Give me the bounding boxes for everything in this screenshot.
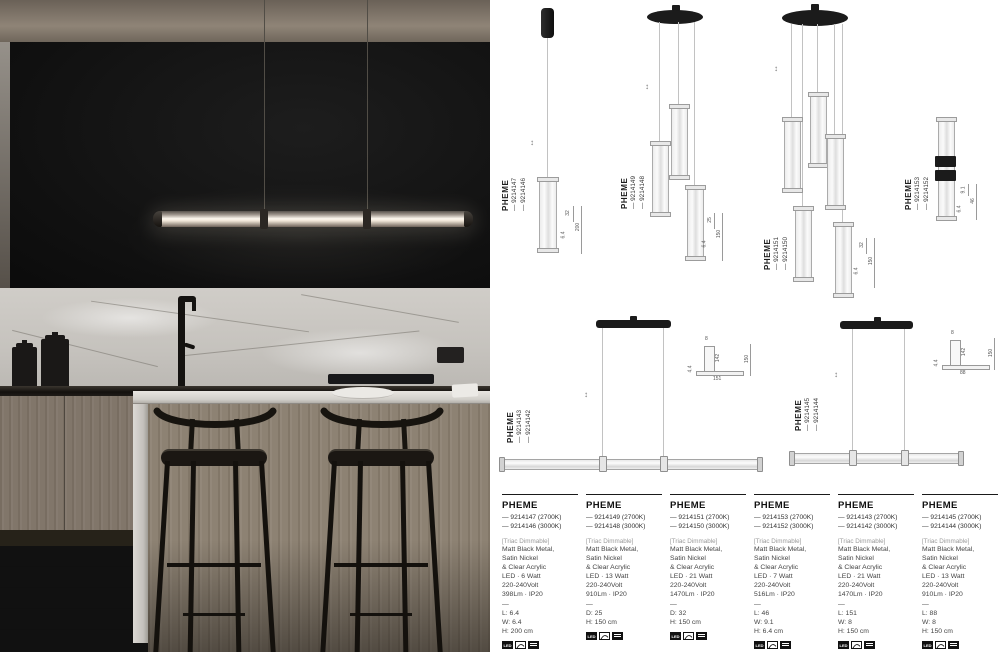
lamp-tube xyxy=(784,118,801,192)
product-dimmable-note: [Triac Dimmable] xyxy=(754,538,830,545)
lamp-tube xyxy=(810,93,827,167)
dimmable-badge xyxy=(851,641,862,649)
catalog-page: PHEME — 9214147 — 9214146 32 200 6.4 PHE… xyxy=(0,0,1003,652)
mount-block xyxy=(935,170,956,181)
lamp-connector xyxy=(363,209,371,229)
drawing-label: PHEME — 9214149 — 9214148 xyxy=(620,176,647,209)
product-electrical: LED · 21 Watt220-240Volt1470Lm · IP20 xyxy=(838,572,914,599)
drawing-brand: PHEME xyxy=(794,398,803,431)
bar-end-cap xyxy=(958,451,964,466)
lamp-tube xyxy=(671,105,688,179)
drawing-code: — 9214151 xyxy=(772,237,781,270)
black-canister xyxy=(12,347,37,389)
suspension-wire xyxy=(678,22,679,105)
suspension-wire xyxy=(659,22,660,142)
pendant-lamp-photo xyxy=(154,211,472,227)
certification-badges: LED xyxy=(922,641,998,649)
island-marble-side xyxy=(133,403,148,643)
bar-end-cap xyxy=(789,451,795,466)
product-material: Matt Black Metal,Satin Nickel& Clear Acr… xyxy=(586,545,662,572)
wood-floor xyxy=(0,546,133,652)
cooktop xyxy=(328,374,434,384)
drawing-code: — 9214148 xyxy=(638,176,647,209)
product-spec-column: PHEME — 9214147 (2700K)— 9214146 (3000K)… xyxy=(502,494,578,649)
product-size: D: 25H: 150 cm xyxy=(586,609,662,627)
lamp-tube xyxy=(835,223,852,297)
bar-connector xyxy=(901,450,909,466)
kitchen-faucet xyxy=(172,296,202,390)
drawing-code: — 9214153 xyxy=(913,177,922,210)
catalog-panel: PHEME — 9214147 — 9214146 32 200 6.4 PHE… xyxy=(490,0,1003,652)
lamp-bar xyxy=(502,459,761,470)
product-variants: — 9214151 (2700K)— 9214150 (3000K) xyxy=(670,513,746,531)
separator-dash: — xyxy=(754,600,830,609)
drawing-brand: PHEME xyxy=(506,410,515,443)
product-spec-column: PHEME — 9214151 (2700K)— 9214150 (3000K)… xyxy=(670,494,746,649)
product-name: PHEME xyxy=(838,500,914,511)
energy-label-badge xyxy=(612,632,623,640)
dimmable-badge xyxy=(599,632,610,640)
drawing-label: PHEME — 9214147 — 9214146 xyxy=(501,178,528,211)
lamp-tube xyxy=(652,142,669,216)
suspension-wire xyxy=(852,329,853,453)
lamp-bar xyxy=(792,453,962,464)
product-size: D: 32H: 150 cm xyxy=(670,609,746,627)
height-adjust-arrow xyxy=(530,138,534,147)
led-badge: LED xyxy=(754,641,765,649)
canopy xyxy=(596,320,671,328)
product-size: L: 6.4W: 6.4H: 200 cm xyxy=(502,609,578,636)
drawing-code: — 9214145 xyxy=(803,398,812,431)
towel xyxy=(452,383,479,397)
drawing-code: — 9214147 xyxy=(510,178,519,211)
energy-label-badge xyxy=(780,641,791,649)
stool-seat xyxy=(161,449,267,466)
suspension-wire xyxy=(602,328,603,459)
product-spec-column: PHEME — 9214145 (2700K)— 9214144 (3000K)… xyxy=(922,494,998,649)
plate xyxy=(332,387,394,399)
energy-label-badge xyxy=(864,641,875,649)
suspension-wire xyxy=(547,38,548,178)
separator-dash: — xyxy=(502,600,578,609)
product-size: L: 46W: 9.1H: 6.4 cm xyxy=(754,609,830,636)
drawing-brand: PHEME xyxy=(501,178,510,211)
drawing-label: PHEME — 9214151 — 9214150 xyxy=(763,237,790,270)
drawing-code: — 9214143 xyxy=(515,410,524,443)
height-adjust-arrow xyxy=(774,64,778,73)
dimmer-curve-icon xyxy=(684,633,693,640)
energy-label-badge xyxy=(948,641,959,649)
lamp-tube xyxy=(938,118,955,220)
drawing-brand: PHEME xyxy=(904,177,913,210)
product-variants: — 9214145 (2700K)— 9214144 (3000K) xyxy=(922,513,998,531)
lamp-tube xyxy=(827,135,844,209)
certification-badges: LED xyxy=(670,632,746,640)
mount-block xyxy=(935,156,956,167)
height-adjust-arrow xyxy=(584,390,588,399)
dimmer-curve-icon xyxy=(852,642,861,649)
dimmer-curve-icon xyxy=(516,642,525,649)
suspension-wire xyxy=(904,329,905,453)
product-name: PHEME xyxy=(670,500,746,511)
product-size: L: 88W: 8H: 150 cm xyxy=(922,609,998,636)
wall-switch xyxy=(437,347,464,363)
product-spec-column: PHEME — 9214143 (2700K)— 9214142 (3000K)… xyxy=(838,494,914,649)
product-material: Matt Black Metal,Satin Nickel& Clear Acr… xyxy=(670,545,746,572)
separator-dash: — xyxy=(586,600,662,609)
ceiling-band xyxy=(0,0,490,42)
product-dimmable-note: [Triac Dimmable] xyxy=(502,538,578,545)
bar-connector xyxy=(660,456,668,472)
canopy xyxy=(541,8,554,38)
energy-label-badge xyxy=(696,632,707,640)
product-spec-column: PHEME — 9214149 (2700K)— 9214148 (3000K)… xyxy=(586,494,662,649)
led-badge: LED xyxy=(502,641,513,649)
product-material: Matt Black Metal,Satin Nickel& Clear Acr… xyxy=(754,545,830,572)
bar-connector xyxy=(849,450,857,466)
spec-columns: PHEME — 9214147 (2700K)— 9214146 (3000K)… xyxy=(502,494,998,649)
pendant-wire xyxy=(264,0,265,213)
product-dimmable-note: [Triac Dimmable] xyxy=(838,538,914,545)
suspension-wire xyxy=(802,24,803,207)
certification-badges: LED xyxy=(502,641,578,649)
bar-connector xyxy=(599,456,607,472)
product-name: PHEME xyxy=(922,500,998,511)
led-badge: LED xyxy=(586,632,597,640)
suspension-wire xyxy=(791,24,792,118)
stool-seat xyxy=(328,449,434,466)
product-electrical: LED · 13 Watt220-240Volt910Lm · IP20 xyxy=(586,572,662,599)
drawing-code: — 9214149 xyxy=(629,176,638,209)
dimmable-badge xyxy=(767,641,778,649)
product-name: PHEME xyxy=(502,500,578,511)
product-electrical: LED · 13 Watt220-240Volt910Lm · IP20 xyxy=(922,572,998,599)
drawing-brand: PHEME xyxy=(620,176,629,209)
product-variants: — 9214153 (2700K)— 9214152 (3000K) xyxy=(754,513,830,531)
marble-backsplash xyxy=(0,288,490,386)
certification-badges: LED xyxy=(838,641,914,649)
base-cabinets xyxy=(0,396,133,530)
lamp-tube xyxy=(687,186,704,260)
drawing-label: PHEME — 9214143 — 9214142 xyxy=(506,410,533,443)
stool-backrest xyxy=(320,405,444,431)
bar-end-cap xyxy=(757,457,763,472)
product-dimmable-note: [Triac Dimmable] xyxy=(670,538,746,545)
pendant-wire xyxy=(367,0,368,213)
dark-wall xyxy=(0,42,490,288)
product-material: Matt Black Metal,Satin Nickel& Clear Acr… xyxy=(838,545,914,572)
drawing-brand: PHEME xyxy=(763,237,772,270)
product-material: Matt Black Metal,Satin Nickel& Clear Acr… xyxy=(922,545,998,572)
product-electrical: LED · 21 Watt220-240Volt1470Lm · IP20 xyxy=(670,572,746,599)
stool-backrest xyxy=(153,405,277,431)
drawing-code: — 9214144 xyxy=(812,398,821,431)
drawing-label: PHEME — 9214153 — 9214152 xyxy=(904,177,931,210)
separator-dash: — xyxy=(670,600,746,609)
drawing-code: — 9214150 xyxy=(781,237,790,270)
drawing-code: — 9214142 xyxy=(524,410,533,443)
product-variants: — 9214143 (2700K)— 9214142 (3000K) xyxy=(838,513,914,531)
lamp-end-cap xyxy=(153,211,162,227)
height-adjust-arrow xyxy=(834,370,838,379)
certification-badges: LED xyxy=(754,641,830,649)
drawing-code: — 9214152 xyxy=(922,177,931,210)
energy-label-badge xyxy=(528,641,539,649)
dimmable-badge xyxy=(515,641,526,649)
bar-end-cap xyxy=(499,457,505,472)
lamp-connector xyxy=(260,209,268,229)
cabinet-toekick xyxy=(0,530,133,546)
island-marble-top xyxy=(133,391,490,404)
product-electrical: LED · 6 Watt220-240Volt398Lm · IP20 xyxy=(502,572,578,599)
separator-dash: — xyxy=(838,600,914,609)
certification-badges: LED xyxy=(586,632,662,640)
dimmer-curve-icon xyxy=(600,633,609,640)
wall-edge xyxy=(0,42,10,288)
dimmable-badge xyxy=(683,632,694,640)
led-badge: LED xyxy=(922,641,933,649)
kitchen-photo xyxy=(0,0,490,652)
lamp-tube xyxy=(539,178,557,252)
led-badge: LED xyxy=(838,641,849,649)
separator-dash: — xyxy=(922,600,998,609)
product-size: L: 151W: 8H: 150 cm xyxy=(838,609,914,636)
product-spec-column: PHEME — 9214153 (2700K)— 9214152 (3000K)… xyxy=(754,494,830,649)
product-material: Matt Black Metal,Satin Nickel& Clear Acr… xyxy=(502,545,578,572)
drawing-label: PHEME — 9214145 — 9214144 xyxy=(794,398,821,431)
product-dimmable-note: [Triac Dimmable] xyxy=(586,538,662,545)
product-electrical: LED · 7 Watt220-240Volt516Lm · IP20 xyxy=(754,572,830,599)
suspension-wire xyxy=(694,22,695,186)
suspension-wire xyxy=(817,24,818,93)
suspension-wire xyxy=(834,24,835,135)
height-adjust-arrow xyxy=(645,82,649,91)
product-dimmable-note: [Triac Dimmable] xyxy=(922,538,998,545)
dimmable-badge xyxy=(935,641,946,649)
suspension-wire xyxy=(663,328,664,459)
dimmer-curve-icon xyxy=(936,642,945,649)
bar-stool xyxy=(320,405,444,652)
product-name: PHEME xyxy=(586,500,662,511)
lamp-tube xyxy=(795,207,812,281)
dimmer-curve-icon xyxy=(768,642,777,649)
canopy xyxy=(840,321,913,329)
led-badge: LED xyxy=(670,632,681,640)
product-name: PHEME xyxy=(754,500,830,511)
product-variants: — 9214149 (2700K)— 9214148 (3000K) xyxy=(586,513,662,531)
black-canister xyxy=(41,339,69,389)
bar-stool xyxy=(153,405,277,652)
drawing-code: — 9214146 xyxy=(519,178,528,211)
product-variants: — 9214147 (2700K)— 9214146 (3000K) xyxy=(502,513,578,531)
